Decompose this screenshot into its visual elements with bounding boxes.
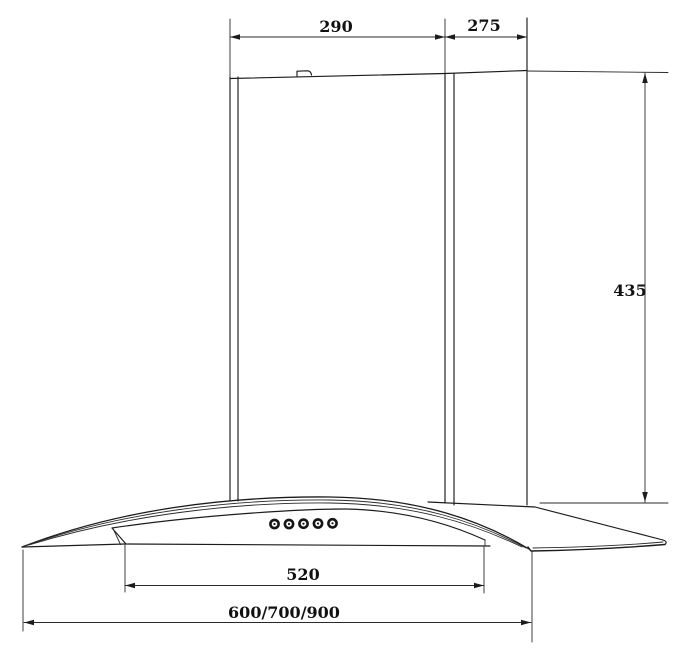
- arrow-435-top: [642, 73, 648, 83]
- hood-button-2-dot: [288, 523, 290, 525]
- hood-button-3-dot: [302, 523, 304, 525]
- arrow-overall-left: [24, 620, 34, 626]
- hood-button-5-dot: [331, 522, 333, 524]
- duct-top-edge: [445, 71, 527, 74]
- dimension-overall: 600/700/900: [23, 550, 532, 642]
- control-buttons: [270, 519, 336, 528]
- hood-button-4-dot: [317, 522, 319, 524]
- arrow-435-bottom: [642, 492, 648, 502]
- chimney-outline: [230, 18, 527, 505]
- shelf-front-edge-inner: [533, 542, 663, 548]
- dim-label-435: 435: [613, 281, 646, 300]
- chimney-top-edge: [230, 74, 445, 79]
- arrow-520-left: [125, 583, 135, 589]
- dim-label-290: 290: [319, 17, 352, 36]
- arrow-275-left: [445, 34, 455, 40]
- shelf-back-edge: [428, 502, 535, 507]
- drawing-canvas: 290 275 435 520: [0, 0, 687, 655]
- arrow-overall-right: [521, 620, 531, 626]
- arrow-290-left: [230, 34, 240, 40]
- dimension-275: 275: [445, 16, 527, 40]
- dimension-520: 520: [125, 545, 484, 593]
- dim-label-275: 275: [467, 16, 500, 35]
- arrow-275-right: [517, 34, 527, 40]
- dimension-290: 290: [230, 17, 445, 76]
- body-bottom-edge: [22, 544, 490, 547]
- arrow-520-right: [474, 583, 484, 589]
- dim-label-overall: 600/700/900: [228, 603, 340, 622]
- hood-dimension-drawing: 290 275 435 520: [0, 0, 687, 655]
- ext-line-435-top: [527, 71, 668, 73]
- shelf-tip-round: [663, 540, 666, 545]
- dimension-435: 435: [527, 71, 668, 503]
- dim-label-520: 520: [286, 565, 319, 584]
- mounting-bracket-tab: [297, 71, 312, 76]
- arrow-290-right: [435, 34, 445, 40]
- glass-shelf-perspective: [428, 502, 666, 551]
- hood-button-1-dot: [273, 523, 275, 525]
- shelf-right-edge: [535, 507, 663, 540]
